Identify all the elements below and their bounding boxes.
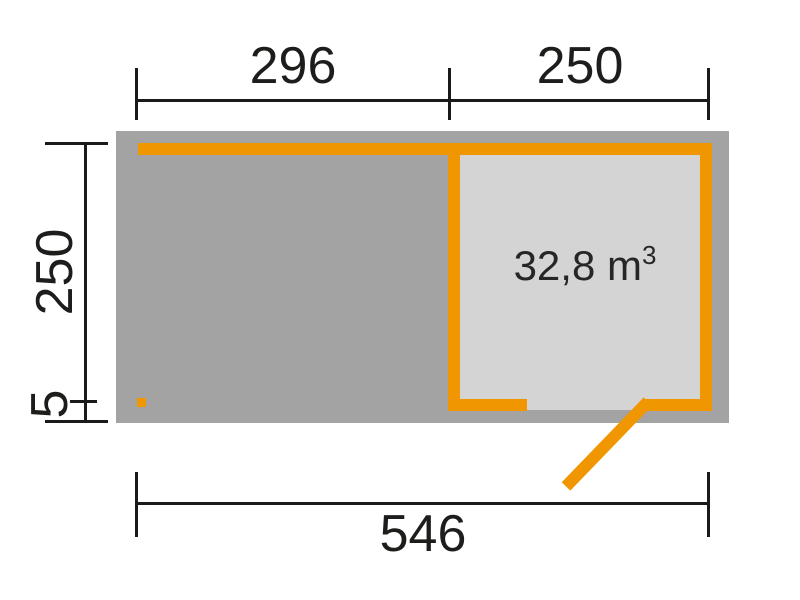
dimension-tick (135, 68, 138, 120)
dimension-label-top-right: 250 (500, 40, 660, 92)
dimension-line-left (84, 143, 87, 423)
floor-plan-diagram: 32,8 m3 296 250 250 5 546 (0, 0, 800, 600)
dimension-label-total-width: 546 (343, 508, 503, 560)
dimension-line-top (136, 99, 709, 102)
post-marker (137, 398, 146, 407)
dimension-tick (707, 68, 710, 120)
dimension-label-side-overhang: 5 (24, 374, 76, 434)
dimension-tick (135, 472, 138, 537)
room-volume-label: 32,8 m3 (435, 242, 735, 294)
dimension-tick (448, 68, 451, 120)
room-volume-value: 32,8 m (514, 242, 642, 289)
room-volume-exponent: 3 (642, 240, 656, 270)
dimension-tick (45, 142, 108, 145)
dimension-tick (707, 472, 710, 537)
wall-top (138, 143, 712, 155)
dimension-label-side-height: 250 (29, 192, 81, 352)
wall-room-bottom-left (448, 399, 527, 411)
dimension-label-top-left: 296 (213, 40, 373, 92)
wall-room-bottom-right (645, 399, 712, 411)
